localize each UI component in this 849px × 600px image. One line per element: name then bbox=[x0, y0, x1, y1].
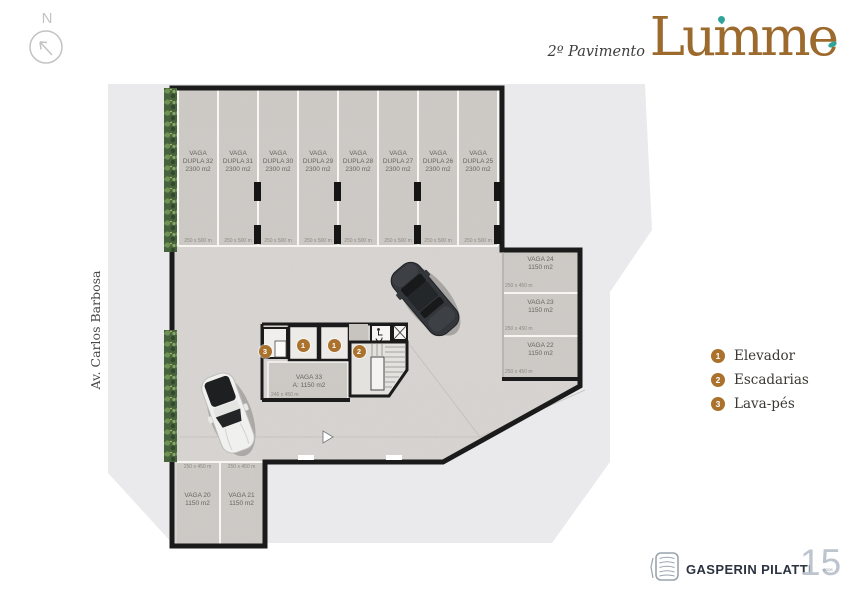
stall-area: A: 1150 m2 bbox=[270, 382, 348, 390]
stall-dimension: 250 x 450 m bbox=[176, 464, 219, 470]
stall-text-line: VAGA 20 bbox=[176, 492, 219, 500]
stall-dimension: 250 x 500 m bbox=[418, 238, 458, 244]
stall-text-line: 250 x 500 m bbox=[458, 238, 498, 244]
stall-text-line: 1150 m2 bbox=[220, 500, 263, 508]
stall-text-line: DUPLA 28 bbox=[338, 158, 378, 166]
stall-label-top: VAGADUPLA 282300 m2 bbox=[338, 150, 378, 174]
floor-plan-graphic bbox=[0, 0, 849, 600]
vegetation-strip-bottom bbox=[164, 330, 177, 462]
stall-text-line: 2300 m2 bbox=[418, 166, 458, 174]
company-name: GASPERIN PILATTI bbox=[686, 562, 812, 577]
stall-label-bottom: VAGA 201150 m2 bbox=[176, 492, 219, 508]
stall-text-line: 250 x 500 m bbox=[378, 238, 418, 244]
stall-label-right: VAGA 241150 m2 bbox=[503, 256, 578, 272]
stall-text-line: 250 x 500 m bbox=[338, 238, 378, 244]
stall-text-line: 2300 m2 bbox=[378, 166, 418, 174]
stall-text-line: 250 x 500 m bbox=[298, 238, 338, 244]
stall-dimension: 250 x 500 m bbox=[458, 238, 498, 244]
stall-text-line: VAGA bbox=[338, 150, 378, 158]
legend-item-lava-pes: 3 Lava-pés bbox=[711, 396, 841, 412]
legend-item-elevador: 1 Elevador bbox=[711, 348, 841, 364]
stall-label-top: VAGADUPLA 312300 m2 bbox=[218, 150, 258, 174]
stall-text-line: VAGA bbox=[218, 150, 258, 158]
marker-footbath: 3 bbox=[259, 345, 272, 358]
stall-text-line: DUPLA 30 bbox=[258, 158, 298, 166]
stall-text-line: 2300 m2 bbox=[178, 166, 218, 174]
marker-elevator-2: 1 bbox=[328, 339, 341, 352]
floor-title: 2º Pavimento bbox=[515, 44, 645, 60]
stall-text-line: DUPLA 26 bbox=[418, 158, 458, 166]
stall-label-top: VAGADUPLA 252300 m2 bbox=[458, 150, 498, 174]
stall-dimension: 250 x 450 m bbox=[505, 326, 575, 332]
stall-text-line: DUPLA 25 bbox=[458, 158, 498, 166]
stall-text-line: VAGA 24 bbox=[503, 256, 578, 264]
stall-text-line: DUPLA 29 bbox=[298, 158, 338, 166]
stall-name: VAGA 33 bbox=[270, 374, 348, 382]
stall-text-line: 250 x 450 m bbox=[505, 369, 575, 375]
stall-label-top: VAGADUPLA 322300 m2 bbox=[178, 150, 218, 174]
stall-text-line: VAGA bbox=[178, 150, 218, 158]
stall-text-line: VAGA bbox=[458, 150, 498, 158]
stall-dimension: 250 x 500 m bbox=[218, 238, 258, 244]
stall-text-line: 2300 m2 bbox=[218, 166, 258, 174]
stall-label-right: VAGA 221150 m2 bbox=[503, 342, 578, 358]
stall-text-line: 250 x 500 m bbox=[218, 238, 258, 244]
stall-dimension: 250 x 500 m bbox=[378, 238, 418, 244]
stall-dimension: 250 x 450 m bbox=[220, 464, 263, 470]
north-label: N bbox=[38, 10, 56, 27]
legend-badge-1: 1 bbox=[711, 349, 725, 363]
north-icon bbox=[30, 31, 62, 63]
legend-label: Lava-pés bbox=[734, 396, 795, 412]
stall-text-line: 1150 m2 bbox=[503, 350, 578, 358]
legend-badge-2: 2 bbox=[711, 373, 725, 387]
stall-text-line: 2300 m2 bbox=[258, 166, 298, 174]
marker-stairs: 2 bbox=[353, 345, 366, 358]
stall-text-line: 250 x 500 m bbox=[258, 238, 298, 244]
stall-label-top: VAGADUPLA 262300 m2 bbox=[418, 150, 458, 174]
stall-text-line: VAGA bbox=[418, 150, 458, 158]
legend-item-escadarias: 2 Escadarias bbox=[711, 372, 841, 388]
stall-text-line: 250 x 450 m bbox=[176, 464, 219, 470]
brand-wordmark: Lumme bbox=[650, 7, 836, 68]
stall-text-line: DUPLA 31 bbox=[218, 158, 258, 166]
stall-text-line: DUPLA 27 bbox=[378, 158, 418, 166]
stall-text-line: 2300 m2 bbox=[298, 166, 338, 174]
stall-label-right: VAGA 231150 m2 bbox=[503, 299, 578, 315]
stall-dimension: 250 x 500 m bbox=[258, 238, 298, 244]
stall-text-line: VAGA bbox=[258, 150, 298, 158]
stall-dimension: 250 x 500 m bbox=[298, 238, 338, 244]
legend-label: Escadarias bbox=[734, 372, 809, 388]
stall-text-line: VAGA bbox=[378, 150, 418, 158]
legend-badge-3: 3 bbox=[711, 397, 725, 411]
stall-text-line: 250 x 500 m bbox=[418, 238, 458, 244]
stall-text-line: VAGA 23 bbox=[503, 299, 578, 307]
stall-text-line: 250 x 450 m bbox=[220, 464, 263, 470]
stall-label-top: VAGADUPLA 302300 m2 bbox=[258, 150, 298, 174]
stall-dimension: 250 x 500 m bbox=[178, 238, 218, 244]
stall-text-line: 250 x 450 m bbox=[505, 283, 575, 289]
stall-text-line: 2300 m2 bbox=[338, 166, 378, 174]
stall-text-line: DUPLA 32 bbox=[178, 158, 218, 166]
stall-text-line: 250 x 450 m bbox=[505, 326, 575, 332]
stall-text-line: 2300 m2 bbox=[458, 166, 498, 174]
legend: 1 Elevador 2 Escadarias 3 Lava-pés bbox=[711, 348, 841, 420]
shaft-x-box bbox=[393, 325, 407, 340]
stall-dimension: 250 x 450 m bbox=[505, 369, 575, 375]
stall-text-line: 1150 m2 bbox=[503, 264, 578, 272]
legend-label: Elevador bbox=[734, 348, 795, 364]
street-label: Av. Carlos Barbosa bbox=[88, 264, 104, 396]
stall-label-center: VAGA 33 A: 1150 m2 bbox=[270, 374, 348, 390]
stall-text-line: VAGA 21 bbox=[220, 492, 263, 500]
stall-label-bottom: VAGA 211150 m2 bbox=[220, 492, 263, 508]
stall-dimension: 246 x 450 m bbox=[271, 392, 341, 398]
stall-dimension: 250 x 450 m bbox=[505, 283, 575, 289]
anniversary-number: 15 bbox=[800, 542, 841, 584]
stall-label-top: VAGADUPLA 272300 m2 bbox=[378, 150, 418, 174]
anniversary-label: anos bbox=[823, 567, 833, 572]
stall-text-line: 1150 m2 bbox=[503, 307, 578, 315]
stall-text-line: VAGA bbox=[298, 150, 338, 158]
building-icon bbox=[650, 550, 684, 590]
marker-elevator-1: 1 bbox=[297, 339, 310, 352]
brand-logo: Lumme bbox=[648, 6, 836, 72]
stall-text-line: 250 x 500 m bbox=[178, 238, 218, 244]
stall-text-line: VAGA 22 bbox=[503, 342, 578, 350]
vegetation-strip-top bbox=[164, 88, 177, 252]
stall-text-line: 1150 m2 bbox=[176, 500, 219, 508]
stall-dimension: 250 x 500 m bbox=[338, 238, 378, 244]
developer-logo: GASPERIN PILATTI 15 anos bbox=[650, 546, 849, 594]
stall-label-top: VAGADUPLA 292300 m2 bbox=[298, 150, 338, 174]
accessible-wc bbox=[371, 325, 391, 342]
page: 2º Pavimento Lumme N Av. Carlos Barbosa … bbox=[0, 0, 849, 600]
